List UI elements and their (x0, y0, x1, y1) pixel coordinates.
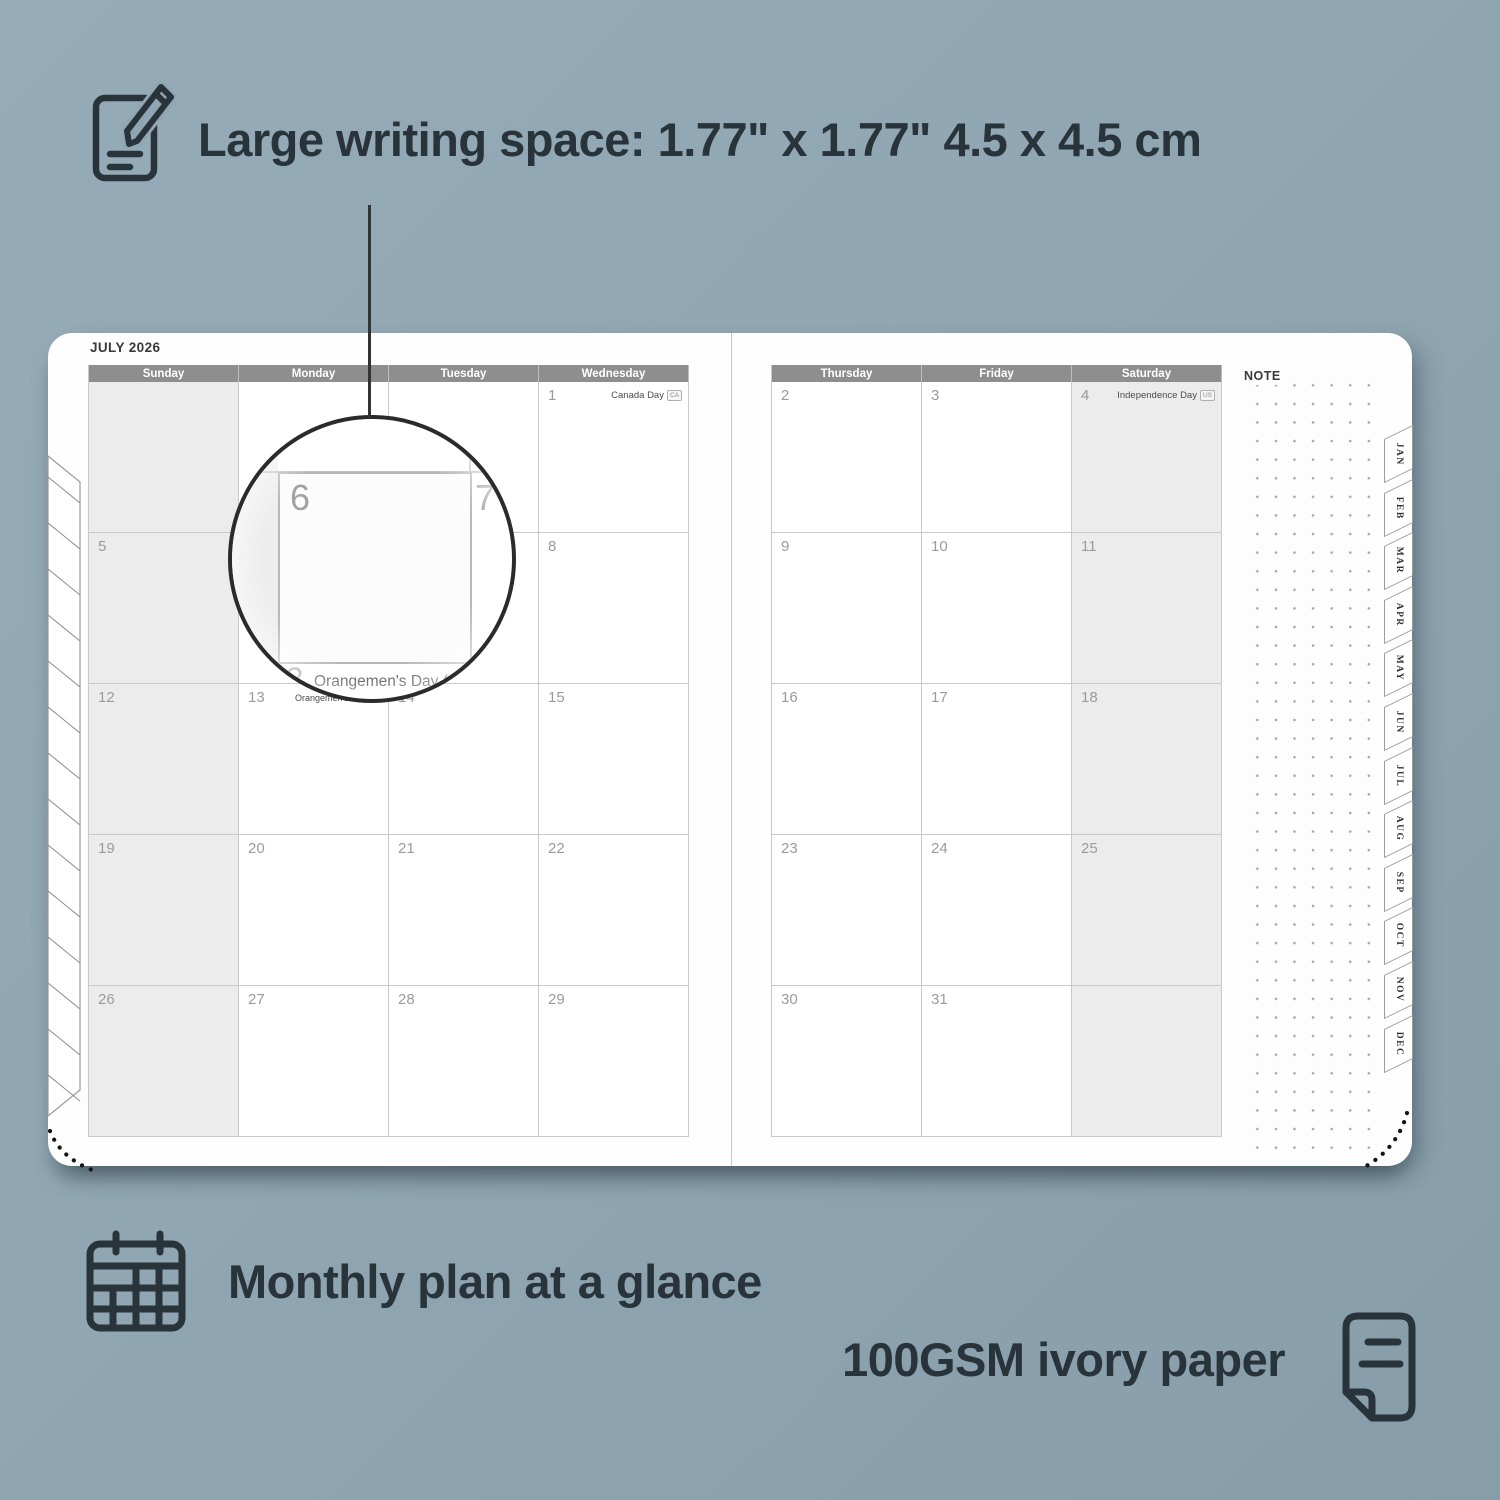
date-number: 25 (1081, 840, 1098, 857)
calendar-cell-14: 14 (389, 684, 539, 835)
notepad-pencil-icon (86, 80, 186, 186)
calendar-cell-24: 24 (922, 835, 1072, 986)
magnifier-circle: 6 7 13 Orangemen's Day (n.i.) UK (228, 415, 516, 703)
date-number: 22 (548, 840, 565, 857)
magnified-holiday-country-badge: UK (479, 675, 503, 690)
month-tab-nov: NOV (1384, 961, 1413, 1019)
date-number: 11 (1081, 538, 1097, 555)
calendar-cell-21: 21 (389, 835, 539, 986)
date-number: 29 (548, 991, 565, 1008)
callout-pointer-line (368, 205, 371, 418)
day-header-tuesday: Tuesday (389, 365, 539, 382)
calendar-cell (1072, 986, 1222, 1137)
date-number: 23 (781, 840, 798, 857)
date-number: 4 (1081, 387, 1089, 404)
calendar-cell-12: 12 (89, 684, 239, 835)
page-spine (731, 333, 732, 1166)
calendar-cell-17: 17 (922, 684, 1072, 835)
month-tab-label: NOV (1394, 977, 1404, 1003)
month-tab-label: APR (1394, 603, 1404, 627)
month-tab-label: JAN (1394, 443, 1404, 466)
month-tab-sep: SEP (1384, 854, 1413, 912)
day-header-saturday: Saturday (1072, 365, 1222, 382)
holiday-country-badge: CA (667, 390, 682, 401)
calendar-cell-13: 13Orangemen's Day (n.i.) (239, 684, 389, 835)
calendar-cell-31: 31 (922, 986, 1072, 1137)
date-number: 8 (548, 538, 556, 555)
calendar-cell-20: 20 (239, 835, 389, 986)
holiday-country-badge: US (1200, 390, 1215, 401)
date-number: 2 (781, 387, 789, 404)
month-tab-label: JUL (1394, 764, 1404, 786)
date-number: 31 (931, 991, 948, 1008)
date-number: 24 (931, 840, 948, 857)
date-number: 17 (931, 689, 948, 706)
calendar-cell-1: 1Canada DayCA (539, 382, 689, 533)
calendar-cell-27: 27 (239, 986, 389, 1137)
holiday-name: Canada Day (611, 390, 664, 401)
date-number: 27 (248, 991, 265, 1008)
month-tab-label: FEB (1394, 496, 1404, 519)
calendar-cell-26: 26 (89, 986, 239, 1137)
calendar-cell-16: 16 (772, 684, 922, 835)
month-title: JULY 2026 (90, 340, 160, 355)
date-number: 12 (98, 689, 115, 706)
month-tab-oct: OCT (1384, 907, 1413, 965)
month-tab-label: SEP (1394, 872, 1404, 894)
holiday-name: Independence Day (1117, 390, 1197, 401)
product-image: { "annotations": { "writing_space": "Lar… (0, 0, 1500, 1500)
calendar-cell-9: 9 (772, 533, 922, 684)
calendar-cell-3: 3 (922, 382, 1072, 533)
date-number: 10 (931, 538, 948, 555)
month-tab-jul: JUL (1384, 747, 1413, 805)
calendar-cell-25: 25 (1072, 835, 1222, 986)
holiday-label: Canada DayCA (611, 390, 682, 401)
calendar-cell-2: 2 (772, 382, 922, 533)
calendar-cell-15: 15 (539, 684, 689, 835)
calendar-grid-right: ThursdayFridaySaturday234Independence Da… (771, 365, 1222, 1137)
calendar-cell-30: 30 (772, 986, 922, 1137)
calendar-cell-28: 28 (389, 986, 539, 1137)
date-number: 26 (98, 991, 115, 1008)
day-header-wednesday: Wednesday (539, 365, 689, 382)
calendar-cell-5: 5 (89, 533, 239, 684)
calendar-cell-8: 8 (539, 533, 689, 684)
month-tab-mar: MAR (1384, 532, 1413, 590)
date-number: 30 (781, 991, 798, 1008)
month-tab-label: DEC (1394, 1031, 1404, 1056)
date-number: 16 (781, 689, 798, 706)
date-number: 20 (248, 840, 265, 857)
month-tab-label: OCT (1394, 924, 1404, 949)
month-tab-jan: JAN (1384, 425, 1413, 483)
calendar-cell-23: 23 (772, 835, 922, 986)
day-header-monday: Monday (239, 365, 389, 382)
date-number: 19 (98, 840, 115, 857)
month-tab-label: MAY (1394, 655, 1404, 681)
date-number: 3 (931, 387, 939, 404)
note-dot-grid (1242, 373, 1382, 1161)
calendar-icon (84, 1230, 188, 1334)
calendar-cell-11: 11 (1072, 533, 1222, 684)
month-tab-apr: APR (1384, 586, 1413, 644)
date-number: 18 (1081, 689, 1098, 706)
writing-space-annotation: Large writing space: 1.77" x 1.77" 4.5 x… (198, 112, 1201, 167)
calendar-cell-22: 22 (539, 835, 689, 986)
holiday-label: Independence DayUS (1117, 390, 1215, 401)
calendar-cell-4: 4Independence DayUS (1072, 382, 1222, 533)
month-tab-may: MAY (1384, 639, 1413, 697)
month-tab-label: JUN (1394, 711, 1404, 734)
paper-annotation: 100GSM ivory paper (0, 1332, 1285, 1387)
magnifier-edge-fade (232, 419, 512, 699)
month-tab-jun: JUN (1384, 693, 1413, 751)
date-number: 28 (398, 991, 415, 1008)
calendar-cell-10: 10 (922, 533, 1072, 684)
month-tab-aug: AUG (1384, 800, 1413, 858)
paper-sheet-icon (1320, 1310, 1420, 1426)
monthly-plan-annotation: Monthly plan at a glance (228, 1254, 762, 1309)
month-tab-label: MAR (1394, 548, 1404, 575)
calendar-cell-29: 29 (539, 986, 689, 1137)
calendar-cell-19: 19 (89, 835, 239, 986)
date-number: 21 (398, 840, 415, 857)
day-header-friday: Friday (922, 365, 1072, 382)
day-header-thursday: Thursday (772, 365, 922, 382)
date-number: 9 (781, 538, 789, 555)
note-label: NOTE (1244, 369, 1285, 385)
date-number: 15 (548, 689, 565, 706)
page-edge-hatching (47, 455, 83, 1117)
month-tab-feb: FEB (1384, 479, 1413, 537)
day-header-sunday: Sunday (89, 365, 239, 382)
date-number: 1 (548, 387, 556, 404)
month-tab-label: AUG (1394, 816, 1404, 842)
calendar-cell (89, 382, 239, 533)
magnified-cell-view: 6 7 13 Orangemen's Day (n.i.) UK (232, 419, 512, 699)
date-number: 5 (98, 538, 106, 555)
calendar-cell-18: 18 (1072, 684, 1222, 835)
month-tab-dec: DEC (1384, 1015, 1413, 1073)
